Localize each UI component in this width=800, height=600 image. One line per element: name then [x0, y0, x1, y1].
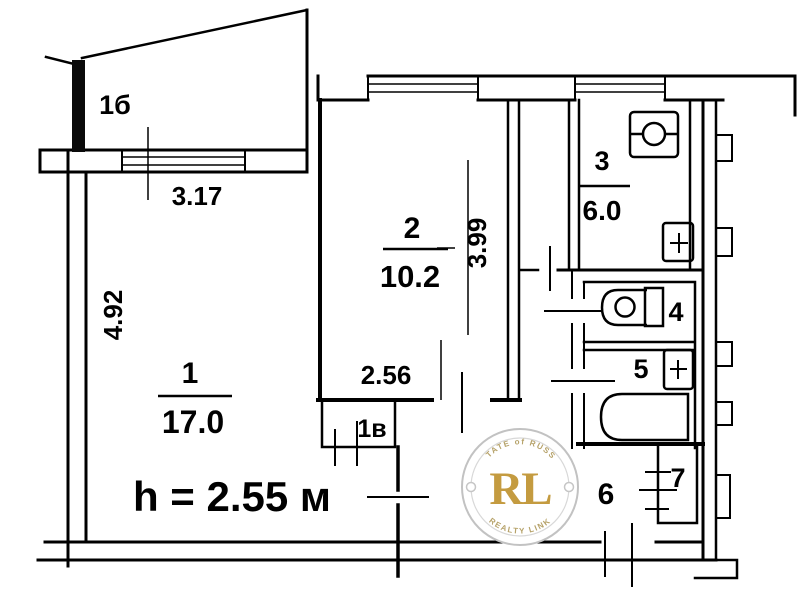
room2-area: 10.2 — [380, 259, 440, 294]
windows — [122, 76, 665, 172]
room-labels: 1б 3.17 1 17.0 4.92 h = 2.55 м 2 10.2 3.… — [98, 90, 686, 520]
watermark-monogram: RL — [489, 463, 551, 515]
dim-balcony-width: 3.17 — [172, 181, 223, 211]
pantry-number: 7 — [670, 463, 685, 493]
toilet-tank — [645, 288, 663, 326]
watermark-dot-right — [565, 483, 574, 492]
dim-room2-width: 2.56 — [361, 360, 412, 390]
room1-number: 1 — [182, 357, 199, 390]
bath-sink-cross — [670, 360, 687, 379]
balcony-parapet — [46, 10, 307, 66]
floor-plan-drawing: 1б 3.17 1 17.0 4.92 h = 2.55 м 2 10.2 3.… — [0, 0, 800, 600]
wc-bath-left-wall — [572, 270, 584, 448]
vent-cross — [670, 233, 688, 253]
kitchen-number: 3 — [594, 146, 609, 176]
wc-number: 4 — [668, 297, 683, 327]
corridor-notches — [716, 135, 732, 518]
balcony-pier — [72, 60, 85, 152]
hall-number: 6 — [598, 478, 615, 511]
fixtures — [601, 112, 693, 440]
apartment-floor-plan: 1б 3.17 1 17.0 4.92 h = 2.55 м 2 10.2 3.… — [0, 0, 800, 600]
ceiling-height-note: h = 2.55 м — [133, 473, 331, 520]
bath-number: 5 — [633, 354, 648, 384]
room2-number: 2 — [404, 212, 421, 245]
toilet-icon — [602, 288, 663, 326]
kitchen-vent-icon — [663, 223, 693, 261]
balcony-label: 1б — [99, 90, 131, 120]
bath-sink-icon — [664, 350, 693, 389]
room1-area: 17.0 — [162, 404, 224, 440]
kitchen-area: 6.0 — [583, 195, 622, 226]
watermark-dot-left — [467, 483, 476, 492]
toilet-bowl — [602, 290, 647, 325]
corridor-bottom-step — [695, 560, 737, 578]
dim-room2-height: 3.99 — [462, 218, 492, 269]
closet1v-label: 1в — [357, 415, 386, 443]
kitchen-sink-icon — [630, 112, 678, 157]
corridor-walls — [695, 100, 737, 578]
balcony-structure — [46, 10, 307, 152]
sink-drain — [643, 123, 665, 145]
toilet-seat — [616, 298, 635, 317]
dim-room1-height: 4.92 — [98, 290, 128, 341]
bathtub-outline — [601, 394, 688, 440]
window-glazing-lines — [122, 84, 665, 165]
bathtub-icon — [601, 394, 688, 440]
